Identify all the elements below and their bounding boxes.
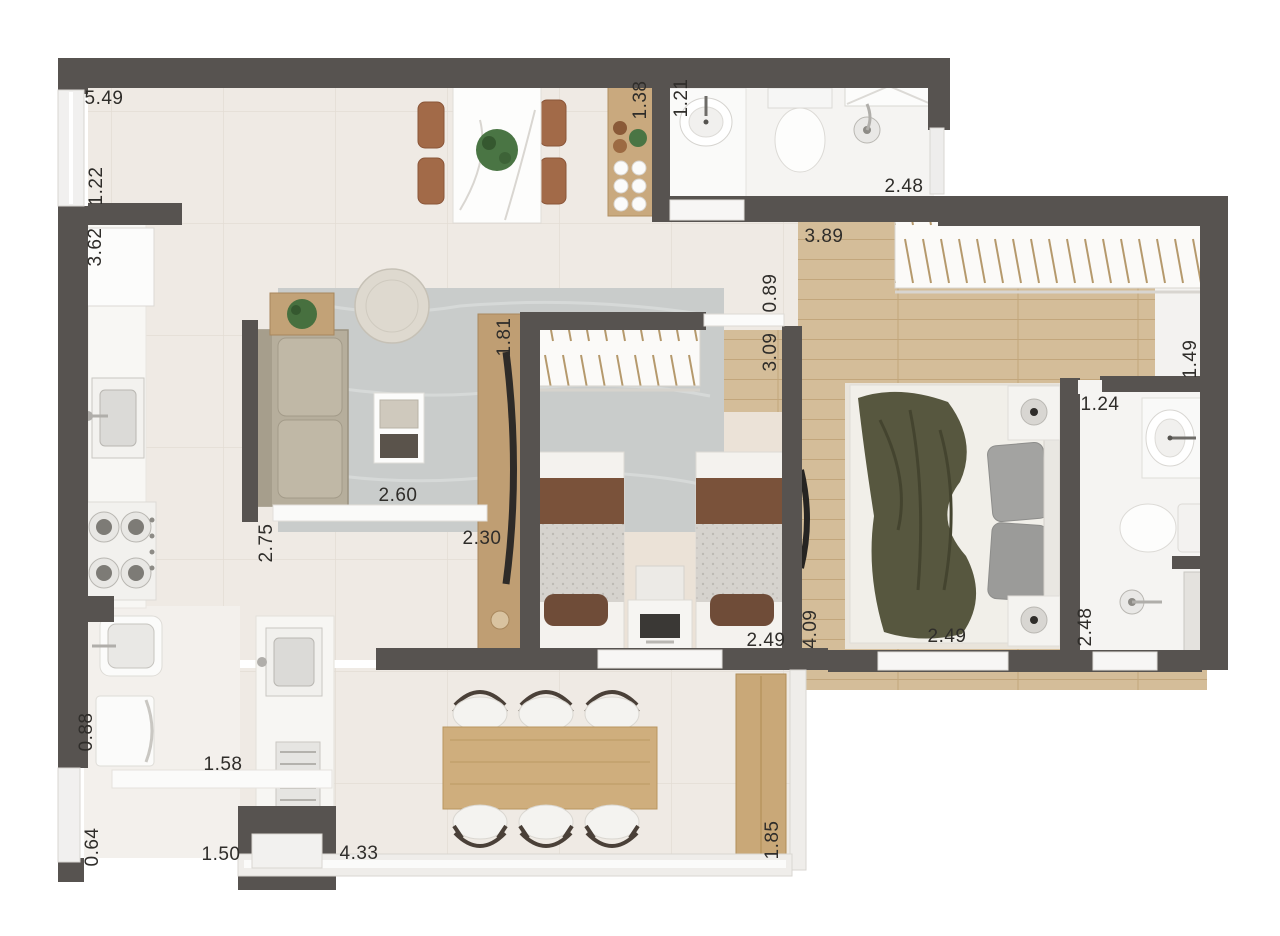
dim-5-49: 5.49 bbox=[85, 88, 124, 109]
bar-plate bbox=[632, 179, 646, 193]
bathroom-door bbox=[670, 200, 744, 220]
console-decor bbox=[491, 611, 509, 629]
dim-4-33: 4.33 bbox=[340, 843, 379, 864]
dim-1-22: 1.22 bbox=[86, 167, 107, 206]
wall-bathroom-right-top bbox=[928, 88, 950, 130]
dim-1-49: 1.49 bbox=[1180, 340, 1201, 379]
dim-4-09: 4.09 bbox=[800, 610, 821, 649]
window-left-bottom bbox=[58, 768, 80, 862]
dim-0-88: 0.88 bbox=[76, 713, 97, 752]
centerpiece-plant-icon bbox=[476, 129, 518, 171]
dim-0-89: 0.89 bbox=[760, 274, 781, 313]
wall-twin-right bbox=[782, 326, 802, 658]
plant-leaf bbox=[482, 136, 496, 150]
coffee-table-tray bbox=[380, 400, 418, 428]
wall-left bbox=[58, 206, 88, 768]
dim-2-60: 2.60 bbox=[379, 485, 418, 506]
bar-plate bbox=[614, 161, 628, 175]
dining-area bbox=[418, 80, 654, 223]
dim-1-38: 1.38 bbox=[630, 81, 651, 120]
faucet-icon bbox=[257, 657, 267, 667]
radio-clock bbox=[640, 614, 680, 638]
toilet-tank bbox=[768, 88, 832, 108]
dim-1-50: 1.50 bbox=[202, 844, 241, 865]
ensuite-window bbox=[1093, 652, 1157, 670]
dining-chair bbox=[540, 158, 566, 204]
bed-blanket bbox=[696, 524, 790, 602]
dim-1-21: 1.21 bbox=[671, 79, 692, 118]
bar-plate bbox=[632, 197, 646, 211]
dim-2-49-main: 2.49 bbox=[928, 626, 967, 647]
island-sink-basin bbox=[274, 638, 314, 686]
sliding-door-track bbox=[273, 505, 487, 521]
wall-top bbox=[58, 58, 950, 88]
plant-leaf bbox=[291, 305, 301, 315]
lamp-center bbox=[1030, 408, 1038, 416]
wall-twin-top bbox=[520, 312, 706, 330]
pillow-brown bbox=[710, 594, 774, 626]
tv-console bbox=[478, 314, 524, 656]
dim-3-09: 3.09 bbox=[760, 333, 781, 372]
bedroom-window bbox=[878, 652, 1008, 670]
towel-shelf bbox=[1184, 572, 1202, 656]
dining-chair bbox=[418, 158, 444, 204]
bed-blanket bbox=[530, 524, 624, 602]
plant-icon bbox=[287, 299, 317, 329]
floor-plan-image: 5.49 1.22 3.62 1.38 1.21 2.48 3.89 0.89 … bbox=[0, 0, 1280, 936]
bed-runner bbox=[696, 478, 790, 524]
wall-right bbox=[1200, 196, 1228, 670]
sofa-cushion bbox=[278, 420, 342, 498]
twin-bed-2 bbox=[696, 452, 790, 652]
twin-bedroom-door bbox=[704, 314, 784, 326]
washing-machine bbox=[96, 696, 154, 766]
dining-chair bbox=[418, 102, 444, 148]
bar-plate bbox=[632, 161, 646, 175]
wall-twin-left bbox=[520, 312, 540, 658]
twin-bed-1 bbox=[530, 452, 624, 652]
dim-1-58: 1.58 bbox=[204, 754, 243, 775]
dim-2-48-bathroom: 2.48 bbox=[885, 176, 924, 197]
balcony-chairs-top bbox=[453, 692, 639, 731]
bedside-stool bbox=[636, 566, 684, 600]
floor-plan-svg: 5.49 1.22 3.62 1.38 1.21 2.48 3.89 0.89 … bbox=[0, 0, 1280, 936]
bar-bottle bbox=[613, 121, 627, 135]
bar-bottle bbox=[613, 139, 627, 153]
twin-wardrobe bbox=[528, 324, 700, 386]
dim-0-64: 0.64 bbox=[82, 828, 103, 867]
dim-2-75: 2.75 bbox=[256, 524, 277, 563]
dim-2-49-twin: 2.49 bbox=[747, 630, 786, 651]
service-window bbox=[252, 834, 322, 868]
dim-2-48-ensuite: 2.48 bbox=[1075, 608, 1096, 647]
dim-1-24: 1.24 bbox=[1081, 394, 1120, 415]
kitchen-sink-basin bbox=[100, 390, 136, 446]
wall-behind-sofa bbox=[242, 320, 258, 522]
bar-plate bbox=[614, 197, 628, 211]
balcony-rail-glass bbox=[244, 860, 786, 868]
wall-stub-kitchen-low bbox=[74, 596, 114, 622]
dining-chair bbox=[540, 100, 566, 146]
coffee-table-book bbox=[380, 434, 418, 458]
wall-bathroom-left bbox=[652, 88, 670, 198]
sofa-cushion bbox=[278, 338, 342, 416]
bed-runner bbox=[530, 478, 624, 524]
pillow-gray bbox=[987, 522, 1048, 602]
toilet-icon bbox=[775, 108, 825, 172]
plant-leaf bbox=[499, 152, 511, 164]
sofa-back bbox=[256, 330, 272, 506]
dim-1-85: 1.85 bbox=[762, 821, 783, 860]
window-bathroom bbox=[930, 128, 944, 194]
dim-3-89: 3.89 bbox=[805, 226, 844, 247]
pillow-brown bbox=[544, 594, 608, 626]
ensuite-door bbox=[1078, 380, 1102, 394]
balcony-side-rail bbox=[790, 670, 806, 870]
bar-plate bbox=[614, 179, 628, 193]
drain bbox=[704, 120, 709, 125]
wall-corner-tl bbox=[58, 58, 88, 94]
wall-bedroom-top bbox=[938, 196, 1228, 226]
lamp-center bbox=[1030, 616, 1038, 624]
toilet-icon bbox=[1120, 504, 1176, 552]
twin-window bbox=[598, 650, 722, 668]
pillow-gray bbox=[987, 442, 1049, 523]
dim-1-81: 1.81 bbox=[494, 318, 515, 357]
drain bbox=[1168, 436, 1173, 441]
headboard-pillows bbox=[1044, 430, 1060, 612]
wall-ensuite-stub bbox=[1172, 556, 1206, 569]
bar-plant bbox=[629, 129, 647, 147]
dim-3-62: 3.62 bbox=[85, 228, 106, 267]
main-wardrobe bbox=[895, 220, 1207, 288]
dim-2-30: 2.30 bbox=[463, 528, 502, 549]
